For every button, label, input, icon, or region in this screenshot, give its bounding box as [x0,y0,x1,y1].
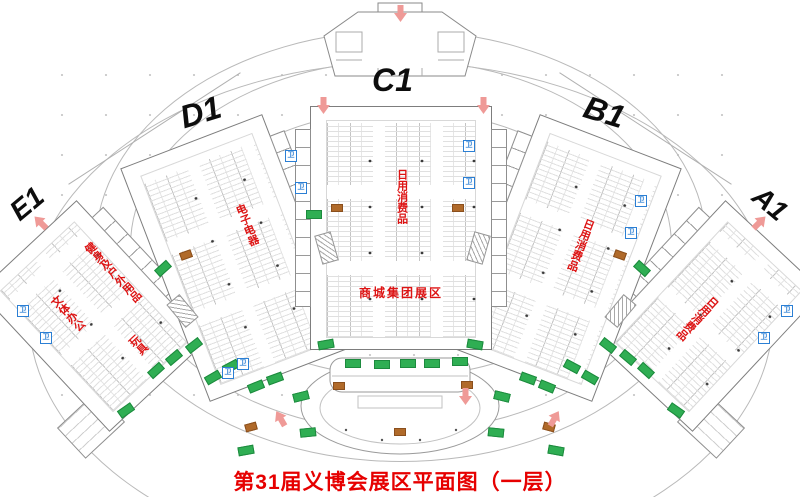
toilet-icon: 卫 [17,305,29,317]
toilet-icon: 卫 [463,177,475,189]
toilet-icon: 卫 [295,182,307,194]
toilet-icon: 卫 [222,367,234,379]
entrance-arrow-icon [477,97,490,114]
service-counter [488,427,505,438]
kiosk-block [331,204,343,212]
pillar-dots [325,121,477,335]
service-counter [300,427,317,438]
service-counter [374,360,390,369]
toilet-icon: 卫 [758,332,770,344]
arrow-glyph [477,97,490,114]
zone-label-c1-bottom: 商城集团展区 [311,287,491,301]
toilet-icon: 卫 [781,305,793,317]
arrow-glyph [459,388,472,405]
service-counter [452,357,468,366]
kiosk-block [452,204,464,212]
service-counter [424,359,440,368]
plan-title: 第31届义博会展区平面图（一层） [0,466,800,496]
arrow-glyph [394,5,407,22]
zone-label-c1-top: 日用消费品 [395,169,408,224]
toilet-icon: 卫 [463,140,475,152]
service-counter [345,359,361,368]
arrow-glyph [317,97,330,114]
entrance-arrow-icon [394,5,407,22]
service-counter [400,359,416,368]
toilet-icon: 卫 [625,227,637,239]
kiosk-block [333,382,345,390]
toilet-icon: 卫 [285,150,297,162]
side-rooms [491,129,507,307]
entrance-arrow-icon [459,388,472,405]
kiosk-block [394,428,406,436]
toilet-icon: 卫 [237,358,249,370]
service-counter [306,210,322,219]
entrance-arrow-icon [317,97,330,114]
plan-canvas: 健身及户外用品 文体办公 玩具 日用消费品 电子电器 日用消费品 日用消费品 商… [0,0,800,497]
toilet-icon: 卫 [635,195,647,207]
hall-label-c1: C1 [372,64,413,96]
toilet-icon: 卫 [40,332,52,344]
